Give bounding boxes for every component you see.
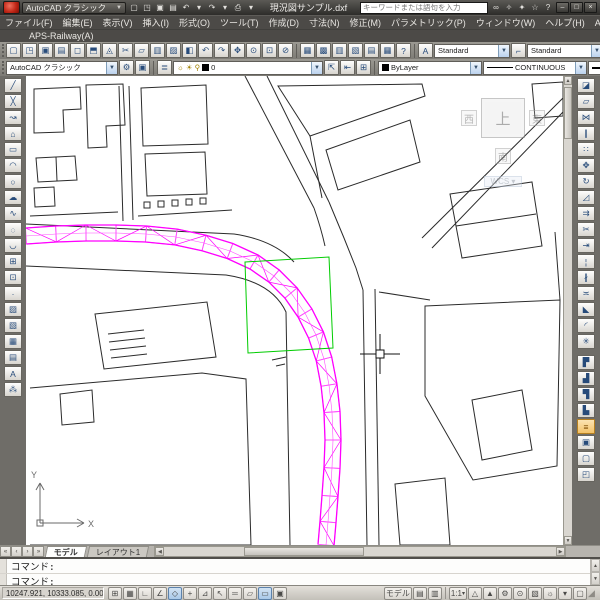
restore-button[interactable]: □ xyxy=(570,2,583,13)
main-area: ╱╳↝⌂▭◠○☁∿◌◡⊞⊡∙▨▧▦▤A⁂ xyxy=(0,76,600,545)
tray-buttons: △▲⚙⊙▧☼▾▢ xyxy=(468,587,587,600)
favorites-star-icon[interactable]: ☆ xyxy=(529,2,541,14)
quick-view-layouts-button[interactable]: ▥ xyxy=(428,587,442,600)
vertical-scrollbar[interactable]: ▲ ▼ xyxy=(563,76,572,545)
ducs-toggle[interactable]: ⊿ xyxy=(198,587,212,600)
toolbar-separator xyxy=(153,61,154,75)
sheet-set-manager-button[interactable]: ▧ xyxy=(348,43,363,58)
chevron-down-icon[interactable]: ▼ xyxy=(311,62,322,74)
undo-dropdown-arrow[interactable]: ▾ xyxy=(193,2,205,14)
stretch-button[interactable]: ⇉ xyxy=(577,206,595,221)
menu-tools[interactable]: ツール(T) xyxy=(215,16,264,29)
statusbar-separator xyxy=(445,587,446,599)
palette-toolbar-buttons: ▦▩▥▧▤▦? xyxy=(300,43,411,58)
pan-button[interactable]: ✥ xyxy=(230,43,245,58)
tab-next-button[interactable]: › xyxy=(22,546,33,557)
scroll-right-button[interactable]: ▶ xyxy=(556,547,565,556)
menu-file[interactable]: ファイル(F) xyxy=(0,16,58,29)
send-to-back-button[interactable]: ▟ xyxy=(577,371,595,386)
array-button[interactable]: ∷ xyxy=(577,142,595,157)
layer-color-swatch xyxy=(202,64,209,71)
drawing-canvas[interactable]: Y X 西 上 東 南 WCS ▾ xyxy=(26,76,563,545)
designcenter-button[interactable]: ▩ xyxy=(316,43,331,58)
explode-button[interactable]: ✳ xyxy=(577,334,595,349)
text-style-value: Standard xyxy=(438,46,468,55)
menu-modify[interactable]: 修正(M) xyxy=(345,16,387,29)
layer-on-bulb-icon[interactable]: ☼ xyxy=(177,63,184,72)
break-button[interactable]: ∦ xyxy=(577,270,595,285)
menu-items: ファイル(F)編集(E)表示(V)挿入(I)形式(O)ツール(T)作成(D)寸法… xyxy=(0,16,600,29)
standard-toolbar-buttons: ▢◳▣▤◻⬒◬✂▱▥▨◧↶↷✥⊙⊡⊘ xyxy=(6,43,293,58)
scale-button[interactable]: ◿ xyxy=(577,190,595,205)
command-scroll-down-button[interactable]: ▼ xyxy=(591,572,600,585)
plot-button[interactable]: ▤ xyxy=(167,2,179,14)
linetype-control-dropdown[interactable]: CONTINUOUS ▼ xyxy=(483,61,587,75)
rectangle-button[interactable]: ▭ xyxy=(4,142,22,157)
annotation-lock-button[interactable]: ▣ xyxy=(577,435,595,450)
layer-properties-button[interactable]: ≣ xyxy=(157,60,172,75)
chevron-down-icon: ▾ xyxy=(462,590,465,597)
search-box[interactable] xyxy=(360,2,488,14)
redo-dropdown-arrow[interactable]: ▾ xyxy=(219,2,231,14)
workspace-buttons: ⚙▣ xyxy=(119,60,150,75)
toolbar-separator xyxy=(296,44,297,58)
lwt-toggle[interactable]: ═ xyxy=(228,587,242,600)
autocad-logo-icon[interactable] xyxy=(3,1,20,14)
menu-edit[interactable]: 編集(E) xyxy=(58,16,98,29)
misc-tool-button[interactable]: ⁂ xyxy=(4,382,22,397)
menu-aps-k[interactable]: APS-K(K) xyxy=(590,16,600,29)
annotation-visibility-button[interactable]: △ xyxy=(468,587,482,600)
tab-first-button[interactable]: « xyxy=(0,546,11,557)
statusbar-right: モデル ▤▥ 1:1 ▾ △▲⚙⊙▧☼▾▢ ◢ xyxy=(384,587,598,600)
help-tool-button[interactable]: ? xyxy=(396,43,411,58)
snap-toggle[interactable]: ⊞ xyxy=(108,587,122,600)
resize-grip-icon[interactable]: ◢ xyxy=(588,587,598,600)
color-control-dropdown[interactable]: ByLayer ▼ xyxy=(378,61,482,75)
tab-prev-button[interactable]: ‹ xyxy=(11,546,22,557)
dyn-toggle[interactable]: ↖ xyxy=(213,587,227,600)
linetype-control-value: CONTINUOUS xyxy=(515,63,565,72)
annotation-scale-value: 1:1 xyxy=(451,589,462,598)
qnew-button[interactable]: ▢ xyxy=(6,43,21,58)
draw-toolbar: ╱╳↝⌂▭◠○☁∿◌◡⊞⊡∙▨▧▦▤A⁂ xyxy=(0,76,26,545)
zoom-previous-button[interactable]: ⊘ xyxy=(278,43,293,58)
layer-dropdown[interactable]: ☼☀⚲ 0 ▼ xyxy=(173,61,323,75)
make-block-button[interactable]: ⊡ xyxy=(4,270,22,285)
fillet-button[interactable]: ◜ xyxy=(577,318,595,333)
polygon-button[interactable]: ⌂ xyxy=(4,126,22,141)
menu-format[interactable]: 形式(O) xyxy=(174,16,215,29)
move-button[interactable]: ✥ xyxy=(577,158,595,173)
menubar-row2: APS-Railway(A) xyxy=(0,29,600,42)
properties-palette-button[interactable]: ▦ xyxy=(300,43,315,58)
command-history-text: コマンド: xyxy=(11,559,55,573)
dim-style-selector[interactable]: Standard ▼ xyxy=(527,44,600,58)
extend-button[interactable]: ⇥ xyxy=(577,238,595,253)
3ddwf-button[interactable]: ◬ xyxy=(102,43,117,58)
status-tray-button[interactable]: ▧ xyxy=(528,587,542,600)
command-window[interactable]: コマンド: コマンド: ▲ ▼ xyxy=(0,557,600,585)
workspace-save-button[interactable]: ▣ xyxy=(135,60,150,75)
insert-block-button[interactable]: ⊞ xyxy=(4,254,22,269)
menu-window[interactable]: ウィンドウ(W) xyxy=(471,16,541,29)
clean-screen-button[interactable]: ▢ xyxy=(573,587,587,600)
chevron-down-icon[interactable]: ▼ xyxy=(470,62,481,74)
workspace-settings-button[interactable]: ⚙ xyxy=(119,60,134,75)
save-file-button[interactable]: ▣ xyxy=(38,43,53,58)
help-icon[interactable]: ? xyxy=(542,2,554,14)
offset-button[interactable]: ∥ xyxy=(577,126,595,141)
tray-dropdown-arrow[interactable]: ▾ xyxy=(558,587,572,600)
print-button[interactable]: ⎙ xyxy=(232,2,244,14)
vscroll-thumb[interactable] xyxy=(564,87,572,139)
save-button[interactable]: ▣ xyxy=(154,2,166,14)
sc-toggle[interactable]: ▣ xyxy=(273,587,287,600)
hatch-button[interactable]: ▨ xyxy=(4,302,22,317)
lineweight-control-dropdown[interactable] xyxy=(588,61,600,75)
model-space-button[interactable]: モデル xyxy=(384,587,412,600)
search-binoculars-icon[interactable]: ∞ xyxy=(490,2,502,14)
markup-set-manager-button[interactable]: ▤ xyxy=(364,43,379,58)
plot-file-button[interactable]: ▤ xyxy=(54,43,69,58)
arc-button[interactable]: ◠ xyxy=(4,158,22,173)
osnap-toggle[interactable]: ◇ xyxy=(168,587,182,600)
cut-button[interactable]: ✂ xyxy=(118,43,133,58)
break-at-point-button[interactable]: ¦ xyxy=(577,254,595,269)
print-dropdown-arrow[interactable]: ▾ xyxy=(245,2,257,14)
standard-toolbar: ▢◳▣▤◻⬒◬✂▱▥▨◧↶↷✥⊙⊡⊘ ▦▩▥▧▤▦? A Standard ▼ … xyxy=(0,42,600,59)
bring-to-front-button[interactable]: ▛ xyxy=(577,355,595,370)
tabs-corner xyxy=(566,546,600,557)
workspace-selector-value: AutoCAD クラシック xyxy=(26,2,106,14)
otrack-toggle[interactable]: + xyxy=(183,587,197,600)
paste-button[interactable]: ▥ xyxy=(150,43,165,58)
grid-toggle[interactable]: ▦ xyxy=(123,587,137,600)
mirror-button[interactable]: ⋈ xyxy=(577,110,595,125)
open-button[interactable]: ◳ xyxy=(141,2,153,14)
workspace-switching-button[interactable]: ⚙ xyxy=(498,587,512,600)
crosshair-cursor xyxy=(360,334,400,374)
lineweight-preview-icon xyxy=(592,67,600,69)
chevron-down-icon: ▼ xyxy=(116,5,122,11)
table-button[interactable]: ▤ xyxy=(4,350,22,365)
tab-nav-buttons: «‹›» xyxy=(0,546,44,557)
autocad-window: AutoCAD クラシック ▼ ▢◳▣▤↶▾↷▾⎙▾ 現況図サンプル.dxf ∞… xyxy=(0,0,600,600)
workspace-selector[interactable]: AutoCAD クラシック ▼ xyxy=(22,2,126,14)
undo-tool-button[interactable]: ↶ xyxy=(198,43,213,58)
text-style-icon[interactable]: A xyxy=(418,43,433,58)
publish-button[interactable]: ⬒ xyxy=(86,43,101,58)
match-properties-button[interactable]: ▨ xyxy=(166,43,181,58)
workspace-dropdown[interactable]: AutoCAD クラシック ▼ xyxy=(6,61,118,75)
color-control-value: ByLayer xyxy=(391,63,419,72)
layers-toolbar: AutoCAD クラシック ▼ ⚙▣ ≣ ☼☀⚲ 0 ▼ ⇱⇤⊞ ByLayer… xyxy=(0,59,600,76)
gradient-button[interactable]: ▧ xyxy=(4,318,22,333)
dim-style-value: Standard xyxy=(531,46,561,55)
modify-buttons: ◪▱⋈∥∷✥↻◿⇉✂⇥¦∦≍◣◜✳ xyxy=(577,78,595,349)
document-title: 現況図サンプル.dxf xyxy=(259,1,358,14)
layer-states-button[interactable]: ⊞ xyxy=(356,60,371,75)
mtext-button[interactable]: A xyxy=(4,366,22,381)
toolbar-separator xyxy=(414,44,415,58)
tool-palettes-button[interactable]: ▥ xyxy=(332,43,347,58)
titlebar: AutoCAD クラシック ▼ ▢◳▣▤↶▾↷▾⎙▾ 現況図サンプル.dxf ∞… xyxy=(0,0,600,15)
tab-model[interactable]: モデル xyxy=(45,546,87,557)
draworder-group-button[interactable]: ◰ xyxy=(577,467,595,482)
quick-access-toolbar: ▢◳▣▤↶▾↷▾⎙▾ xyxy=(128,2,257,14)
menu-draw[interactable]: 作成(D) xyxy=(264,16,305,29)
ucs-icon: Y X xyxy=(31,470,94,529)
ellipse-button[interactable]: ◌ xyxy=(4,222,22,237)
command-margin xyxy=(0,559,7,573)
toolbar-lock-button[interactable]: ⊙ xyxy=(513,587,527,600)
ellipse-arc-button[interactable]: ◡ xyxy=(4,238,22,253)
command-scroll-up-button[interactable]: ▲ xyxy=(591,559,600,572)
menu-parametric[interactable]: パラメトリック(P) xyxy=(386,16,471,29)
coordinates-display[interactable]: 10247.921, 10333.085, 0.0000 xyxy=(2,587,104,599)
redo-tool-button[interactable]: ↷ xyxy=(214,43,229,58)
zoom-realtime-button[interactable]: ⊙ xyxy=(246,43,261,58)
join-button[interactable]: ≍ xyxy=(577,286,595,301)
transparency-toggle[interactable]: ▱ xyxy=(243,587,257,600)
point-button[interactable]: ∙ xyxy=(4,286,22,301)
color-swatch xyxy=(382,64,389,71)
hscroll-track xyxy=(364,547,556,556)
chevron-down-icon[interactable]: ▼ xyxy=(575,62,586,74)
layout-tabs-row: «‹›» モデル レイアウト1 ◀ ▶ xyxy=(0,545,600,557)
dim-style-icon[interactable]: ⌐ xyxy=(511,43,526,58)
horizontal-scrollbar[interactable]: ◀ ▶ xyxy=(154,546,566,557)
infocenter-icons: ∞✧✦☆? xyxy=(490,2,554,14)
performance-tuner-button[interactable]: ☼ xyxy=(543,587,557,600)
menu-dimension[interactable]: 寸法(N) xyxy=(304,16,345,29)
toolbar-grip-icon[interactable] xyxy=(2,44,4,57)
hatch-to-back-button[interactable]: ▢ xyxy=(577,451,595,466)
svg-text:X: X xyxy=(88,519,94,529)
open-file-button[interactable]: ◳ xyxy=(22,43,37,58)
command-history-line: コマンド: xyxy=(0,559,590,574)
map-linework-layer xyxy=(26,76,563,545)
modify-toolbar: ◪▱⋈∥∷✥↻◿⇉✂⇥¦∦≍◣◜✳ ▛▟▜▙≡▣▢◰ xyxy=(572,76,600,545)
draworder-buttons: ▛▟▜▙≡▣▢◰ xyxy=(577,355,595,482)
subscription-key-icon[interactable]: ✧ xyxy=(503,2,515,14)
text-style-selector[interactable]: Standard ▼ xyxy=(434,44,510,58)
undo-button[interactable]: ↶ xyxy=(180,2,192,14)
vscroll-track xyxy=(564,139,572,536)
command-scrollbar[interactable]: ▲ ▼ xyxy=(590,559,600,585)
scroll-left-button[interactable]: ◀ xyxy=(155,547,164,556)
annotation-autoscale-button[interactable]: ▲ xyxy=(483,587,497,600)
zoom-window-button[interactable]: ⊡ xyxy=(262,43,277,58)
revision-cloud-button[interactable]: ☁ xyxy=(4,190,22,205)
chevron-down-icon[interactable]: ▼ xyxy=(106,62,117,74)
polar-toggle[interactable]: ∠ xyxy=(153,587,167,600)
annotation-scale-button[interactable]: 1:1 ▾ xyxy=(449,587,467,600)
layer-tool-buttons: ⇱⇤⊞ xyxy=(324,60,371,75)
copy-button[interactable]: ▱ xyxy=(134,43,149,58)
search-input[interactable] xyxy=(363,3,485,12)
qp-toggle[interactable]: ▭ xyxy=(258,587,272,600)
toolbar-grip-icon[interactable] xyxy=(2,61,4,74)
trim-button[interactable]: ✂ xyxy=(577,222,595,237)
region-button[interactable]: ▦ xyxy=(4,334,22,349)
toolbar-separator xyxy=(374,61,375,75)
drafting-toggles: ⊞▦∟∠◇+⊿↖═▱▭▣ xyxy=(108,587,287,600)
redo-button[interactable]: ↷ xyxy=(206,2,218,14)
scroll-up-button[interactable]: ▲ xyxy=(564,76,572,85)
text-to-front-button[interactable]: ≡ xyxy=(577,419,595,434)
layer-lock-icon[interactable]: ⚲ xyxy=(195,63,201,72)
construction-line-button[interactable]: ╳ xyxy=(4,94,22,109)
line-button[interactable]: ╱ xyxy=(4,78,22,93)
layer-freeze-sun-icon[interactable]: ☀ xyxy=(186,63,193,72)
plot-preview-button[interactable]: ◻ xyxy=(70,43,85,58)
quick-view-buttons: ▤▥ xyxy=(413,587,442,600)
statusbar: 10247.921, 10333.085, 0.0000 ⊞▦∟∠◇+⊿↖═▱▭… xyxy=(0,585,600,600)
block-editor-button[interactable]: ◧ xyxy=(182,43,197,58)
svg-text:Y: Y xyxy=(31,470,37,480)
bring-above-objects-button[interactable]: ▜ xyxy=(577,387,595,402)
chevron-down-icon[interactable]: ▼ xyxy=(498,45,509,57)
layer-state-icons: ☼☀⚲ xyxy=(177,63,200,72)
spline-button[interactable]: ∿ xyxy=(4,206,22,221)
ortho-toggle[interactable]: ∟ xyxy=(138,587,152,600)
quickcalc-button[interactable]: ▦ xyxy=(380,43,395,58)
menu-help[interactable]: ヘルプ(H) xyxy=(540,16,590,29)
rotate-button[interactable]: ↻ xyxy=(577,174,595,189)
close-button[interactable]: × xyxy=(584,2,597,13)
tab-layout1[interactable]: レイアウト1 xyxy=(87,546,150,557)
circle-button[interactable]: ○ xyxy=(4,174,22,189)
copy-object-button[interactable]: ▱ xyxy=(577,94,595,109)
layer-previous-button[interactable]: ⇤ xyxy=(340,60,355,75)
chamfer-button[interactable]: ◣ xyxy=(577,302,595,317)
scroll-down-button[interactable]: ▼ xyxy=(564,536,572,545)
chevron-down-icon[interactable]: ▼ xyxy=(591,45,600,57)
send-under-objects-button[interactable]: ▙ xyxy=(577,403,595,418)
linetype-preview-icon xyxy=(487,67,513,68)
erase-button[interactable]: ◪ xyxy=(577,78,595,93)
new-button[interactable]: ▢ xyxy=(128,2,140,14)
tab-last-button[interactable]: » xyxy=(33,546,44,557)
drawing-svg: Y X xyxy=(26,76,563,545)
menu-view[interactable]: 表示(V) xyxy=(98,16,138,29)
minimize-button[interactable]: – xyxy=(556,2,569,13)
hscroll-thumb[interactable] xyxy=(244,547,364,556)
menu-insert[interactable]: 挿入(I) xyxy=(138,16,175,29)
quick-view-drawings-button[interactable]: ▤ xyxy=(413,587,427,600)
window-controls: –□× xyxy=(556,2,597,13)
layer-name-value: 0 xyxy=(211,63,215,72)
menubar: ファイル(F)編集(E)表示(V)挿入(I)形式(O)ツール(T)作成(D)寸法… xyxy=(0,15,600,29)
make-object-layer-current-button[interactable]: ⇱ xyxy=(324,60,339,75)
workspace-dropdown-value: AutoCAD クラシック xyxy=(10,62,81,73)
menu-aps-railway[interactable]: APS-Railway(A) xyxy=(24,30,99,42)
polyline-button[interactable]: ↝ xyxy=(4,110,22,125)
communication-center-icon[interactable]: ✦ xyxy=(516,2,528,14)
